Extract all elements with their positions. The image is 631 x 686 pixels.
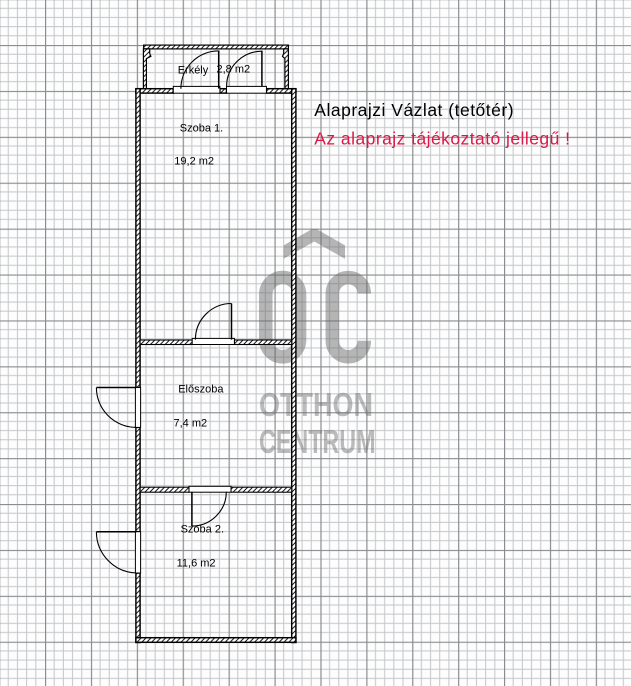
svg-text:Szoba 1.: Szoba 1. [180, 122, 223, 134]
svg-text:Erkély: Erkély [178, 64, 209, 76]
svg-text:Az alaprajz tájékoztató jelleg: Az alaprajz tájékoztató jellegű ! [314, 129, 570, 149]
svg-text:CENTRUM: CENTRUM [259, 424, 376, 461]
svg-text:Alaprajzi Vázlat (tetőtér): Alaprajzi Vázlat (tetőtér) [314, 100, 514, 120]
svg-text:7,4 m2: 7,4 m2 [174, 418, 208, 430]
svg-text:19,2 m2: 19,2 m2 [174, 156, 214, 168]
svg-text:Szoba 2.: Szoba 2. [181, 524, 224, 536]
svg-text:11,6 m2: 11,6 m2 [177, 557, 216, 569]
svg-text:2,8 m2: 2,8 m2 [217, 64, 251, 76]
svg-text:OTTHON: OTTHON [259, 387, 373, 424]
svg-text:Előszoba: Előszoba [178, 384, 224, 396]
